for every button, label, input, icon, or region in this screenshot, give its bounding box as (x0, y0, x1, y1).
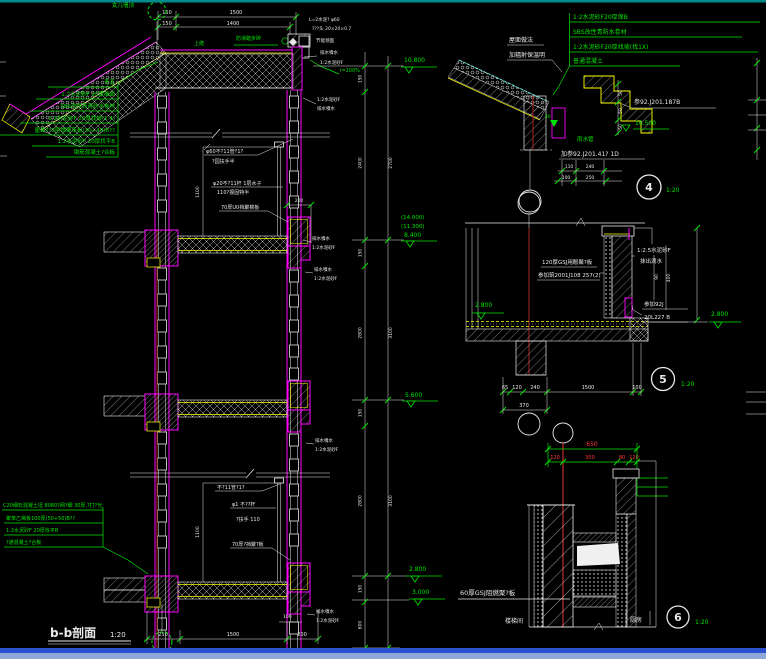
detail5-geometry (465, 192, 652, 375)
parapet-notes: L=2水泥? φ60 ???头 20×20×0.7 节能领面 排水噴水 1:2水… (303, 16, 360, 112)
bottom-border-light (0, 653, 766, 659)
spec-line: 普通混凝土 (573, 57, 603, 65)
note-label: 雨水管 (577, 135, 594, 143)
grid-bubble-icon (553, 423, 573, 443)
spec-line: C20细石混凝土坦 8080?网?细 30厚,?打?光 (3, 502, 102, 509)
note-label: 1:2水泥砂F (317, 96, 341, 103)
dim-label: 1500 (582, 385, 595, 391)
note-label: 排水噴水 (320, 49, 338, 56)
detail4-badge: 4 1:20 (637, 175, 680, 199)
note-label: 60厚GSJ阻燃聚?板 (460, 588, 516, 597)
elevation-label: (11.300) (401, 224, 425, 230)
elevation-label: 2.800 (409, 566, 426, 573)
dim-label: 240 (530, 385, 540, 391)
void-panel (577, 543, 620, 566)
dim-label: 2700 (388, 157, 394, 169)
elevation-label: (14.000) (401, 215, 425, 221)
dim-label: 2800 (358, 495, 364, 507)
note-label: 1:2水泥砂F (320, 59, 344, 66)
dim-label: 200 (295, 198, 304, 204)
note-label: 屋面做法 (509, 36, 533, 44)
roof-walk-note: 上爬 (194, 40, 204, 47)
note-label: 120厚GSJ用酚聚?板 (542, 258, 593, 266)
dim-label: 650 (586, 441, 598, 448)
badge-number: 5 (659, 373, 667, 386)
grid-bubble-icon (518, 413, 540, 435)
top-border (0, 0, 766, 3)
room-label: 厨房 (630, 616, 642, 624)
note-label: 排水噴水 (317, 105, 335, 112)
dim-label: 100 (283, 614, 292, 620)
dim-label: 300 (585, 455, 595, 461)
title-scale: 1:20 (110, 631, 126, 639)
slope-grade-label: i=100% (340, 68, 360, 74)
note-label: 1:2水泥砂F (315, 446, 339, 453)
detail4-geometry: 40 50 50 50 (448, 60, 652, 150)
marker-label: 40 (545, 114, 551, 120)
edge-marks (0, 62, 7, 156)
floor-spec-block: C20细石混凝土坦 8080?网?细 30厚,?打?光 聚苯乙烯板100厚(50… (2, 502, 148, 574)
badge-scale: 1:20 (681, 381, 695, 388)
spec-line: 1:2水泥砂F20厚保B (573, 13, 628, 21)
note-label: 排水噴水 (314, 266, 332, 273)
spec-line: 1:2水泥砂F 20厚细面 (61, 90, 115, 98)
cad-drawing: 上爬 防滑踏步砖 L=2水泥? φ60 ???头 20×20×0.7 节能领面 … (0, 0, 766, 659)
dim-label: 110 (565, 164, 574, 170)
note-label: 抹出滴水 (640, 257, 663, 265)
detail-4: 1:2水泥砂F20厚保B SBS改性青防水卷材 1:2水泥砂F20厚找坡(找1X… (448, 13, 766, 212)
spec-line: 青瓦 (104, 78, 116, 86)
dim-chain: 150 2400 150 2800 150 2800 150 600 2700 … (313, 52, 409, 651)
flat-roof: 上爬 防滑踏步砖 (155, 35, 297, 88)
dim-label: 50 (618, 90, 624, 96)
badge-scale: 1:20 (666, 187, 680, 194)
note-label: 1:2.5水泥砂F (637, 246, 671, 254)
top-dims: 150 1500 150 1400 (155, 10, 299, 40)
spec-line: 钢筋混凝土?合板 (74, 148, 116, 156)
detail4-right-marks (748, 58, 766, 160)
dim-label: 1100 (195, 186, 201, 198)
dim-label: 120 (512, 385, 522, 391)
dim-label: 1500 (230, 10, 243, 16)
elevation-label: 2.800 (475, 302, 492, 309)
ref-label: 加参92.J201.41? 1D (561, 150, 619, 158)
spec-line: ?通混凝土?合板 (6, 539, 41, 546)
dim-label: 150 (358, 75, 364, 84)
detail5-right-marks (746, 392, 766, 414)
rail-note: φ1 不??杆 (232, 501, 255, 508)
rail-note: φ20不?11杆 1层水子 (213, 180, 261, 187)
dim-label: 1400 (227, 21, 240, 27)
elevation-label: 16.500 (635, 120, 656, 127)
detail-6: 650 120 300 80 120 60厚GSJ阻燃聚?板 楼梯间 (458, 423, 709, 630)
detail6-badge: 6 1:20 (667, 606, 709, 628)
note-label: 节能领面 (316, 37, 334, 44)
spec-line: 1:2水泥砂F20厚找坡(找1X) (573, 43, 648, 51)
grid-bubble-icon (519, 190, 541, 212)
note-label: 1:2水泥砂F (314, 275, 338, 282)
section-title: b-b剖面 1:20 (48, 625, 131, 644)
dim-label: 150 (358, 249, 364, 258)
detail5-badge: 5 1:20 (652, 368, 695, 391)
dim-label: 150 (358, 409, 364, 418)
elevation-markers: 10.800 (14.000) (11.300) 8.400 5.600 2.8… (401, 57, 445, 605)
rail-note: ?园扶手半 (212, 158, 235, 165)
dim-label: 100 (632, 385, 642, 391)
rail-note: 110?振固特半 (217, 189, 249, 196)
dim-label: 400 (666, 274, 672, 283)
floor-slab (104, 563, 310, 614)
dim-label: 120 (550, 455, 560, 461)
dim-label: 200 (297, 632, 307, 638)
dim-label: 370 (519, 403, 529, 409)
dim-label: 2400 (358, 157, 364, 169)
spot-marker-icon (550, 120, 558, 127)
left-wall (155, 92, 169, 648)
elevation-label: 3.000 (412, 589, 429, 596)
dim-label: 600 (358, 621, 364, 630)
room-label: 楼梯间 (505, 617, 523, 625)
spec-line: 1:2水泥砂F 20厚找平B (6, 527, 59, 534)
roof-step-note: 防滑踏步砖 (236, 35, 261, 42)
dim-label: 150 (162, 21, 172, 27)
railing-lower: 1100 不?11管?1? φ1 不??杆 ?扶手 110 70厚?挡聚?板 (195, 478, 290, 582)
roof-note-mark-icon (282, 38, 288, 44)
spec-line: 聚苯乙烯板100厚(50+50)B?? (6, 515, 75, 522)
elevation-label: 2.800 (711, 311, 728, 318)
note-label: 排水噴水 (316, 608, 334, 615)
note-label: 参加筑2001J108 257(2) (538, 271, 601, 279)
floor-slab (104, 381, 310, 432)
rail-note: 70厚?挡聚?板 (232, 541, 264, 548)
grid-bubble-icon (518, 192, 540, 214)
dim-label: 150 (162, 10, 172, 16)
detail-5: 120厚GSJ用酚聚?板 参加筑2001J108 257(2) 1:2.5水泥砂… (465, 192, 766, 435)
dim-label: 240 (586, 164, 595, 170)
main-section: 上爬 防滑踏步砖 L=2水泥? φ60 ???头 20×20×0.7 节能领面 … (0, 1, 445, 652)
dim-label: 1100 (195, 526, 201, 538)
spec-line: SBS改性沥青防水卷材 (60, 102, 115, 110)
detail4-leaders: 参92.J201.187B 16.500 雨水管 加参92.J201.41? 1… (559, 98, 716, 159)
note-label: ???头 20×20×0.7 (312, 25, 351, 32)
rail-note: ?扶手 110 (236, 516, 260, 523)
elevation-label: 8.400 (404, 232, 421, 239)
note-label: L=2水泥? φ60 (309, 16, 340, 23)
rail-note: φ60不?11管?1? (206, 148, 244, 155)
ref-label: 参92.J201.187B (634, 98, 680, 106)
dim-label: 80 (619, 455, 625, 461)
badge-scale: 1:20 (695, 619, 709, 626)
note-label: 1:2水泥砂F (312, 244, 336, 251)
cad-canvas: 上爬 防滑踏步砖 L=2水泥? φ60 ???头 20×20×0.7 节能领面 … (0, 0, 766, 659)
ref-label: 20L227 B (644, 315, 670, 321)
elevation-label: 10.800 (404, 57, 425, 64)
dim-label: 100 (562, 175, 571, 181)
page-title: b-b剖面 (50, 625, 96, 640)
dim-label: 50 (618, 108, 624, 114)
note-label: 1:2水泥砂F (316, 617, 340, 624)
spec-line: 1:2水泥砂F 20厚找坡(1:4) (48, 114, 115, 122)
dim-label: 3100 (388, 327, 394, 339)
note-label: 排水噴水 (312, 235, 330, 242)
badge-number: 4 (645, 181, 653, 194)
dim-label: 1500 (227, 632, 240, 638)
ref-label: 参加92J (644, 300, 664, 308)
bottom-border (0, 648, 766, 653)
elevation-label: 5.600 (405, 392, 422, 399)
detail4-roof-note: 屋面做法 加辐射保温明 (507, 36, 562, 72)
rail-note: 不?11管?1? (217, 484, 245, 491)
spec-line: 屋面??3阻燃聚苯板(30+40)B?? (35, 126, 115, 134)
note-label: 排水噴水 (315, 437, 333, 444)
badge-number: 6 (674, 611, 682, 624)
dim-label: 150 (358, 585, 364, 594)
floor-slab (104, 217, 310, 268)
dim-label: 250 (586, 175, 595, 181)
dim-label: 3100 (388, 495, 394, 507)
note-label: 加辐射保温明 (509, 51, 545, 59)
spec-line: 1:2水泥砂F 20厚找平B (57, 137, 115, 145)
spec-line: SBS改性青防水卷材 (573, 28, 627, 36)
dim-label: 90 (654, 274, 660, 280)
dim-label: 2800 (358, 327, 364, 339)
rail-note: 70厚U0挡聚棉板 (221, 204, 259, 211)
